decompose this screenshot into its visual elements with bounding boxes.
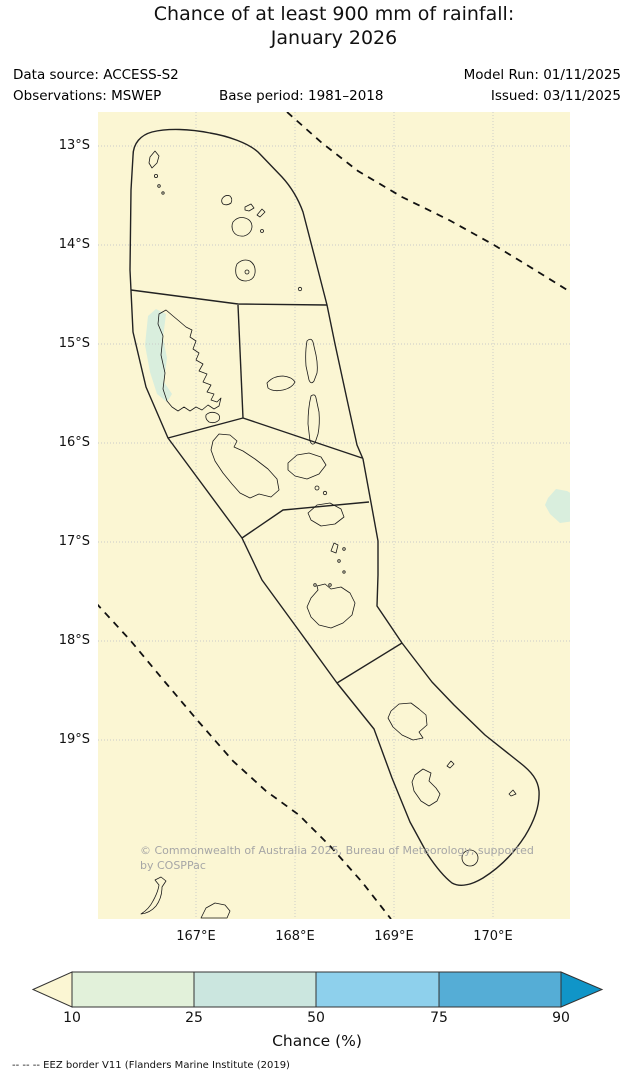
colorbar-seg-10-25 (72, 972, 194, 1007)
lat-tick-13s: 13°S (38, 138, 90, 153)
model-run-text: Model Run: 01/11/2025 (464, 67, 621, 83)
vanuatu-map-svg: © Commonwealth of Australia 2025, Bureau… (98, 112, 570, 919)
lat-tick-14s: 14°S (38, 237, 90, 252)
map-background (98, 112, 570, 919)
colorbar-tick-50: 50 (307, 1010, 325, 1026)
colorbar-seg-25-50 (194, 972, 316, 1007)
eez-footnote: -- -- -- EEZ border V11 (Flanders Marine… (12, 1060, 290, 1071)
forecast-map-page: Chance of at least 900 mm of rainfall: J… (0, 0, 632, 1081)
colorbar-tick-90: 90 (552, 1010, 570, 1026)
map-area: © Commonwealth of Australia 2025, Bureau… (98, 112, 570, 919)
data-source-text: Data source: ACCESS-S2 (13, 67, 179, 83)
colorbar-tick-75: 75 (430, 1010, 448, 1026)
colorbar-under-arrow (33, 972, 72, 1007)
colorbar-tick-10: 10 (63, 1010, 81, 1026)
colorbar-over-arrow (561, 972, 602, 1007)
colorbar-legend: 10 25 50 75 90 Chance (%) (20, 965, 620, 1055)
page-title: Chance of at least 900 mm of rainfall: J… (98, 2, 570, 50)
copyright-line-1: © Commonwealth of Australia 2025, Bureau… (140, 844, 534, 857)
lon-tick-170e: 170°E (463, 929, 523, 944)
colorbar-seg-50-75 (316, 972, 439, 1007)
title-line-2: January 2026 (98, 26, 570, 50)
issued-text: Issued: 03/11/2025 (491, 88, 621, 104)
title-line-1: Chance of at least 900 mm of rainfall: (98, 2, 570, 26)
lat-tick-17s: 17°S (38, 534, 90, 549)
lon-tick-167e: 167°E (166, 929, 226, 944)
base-period-text: Base period: 1981–2018 (219, 88, 383, 104)
lon-tick-169e: 169°E (364, 929, 424, 944)
colorbar-seg-75-90 (439, 972, 561, 1007)
colorbar-label: Chance (%) (272, 1032, 362, 1050)
lat-tick-16s: 16°S (38, 435, 90, 450)
copyright-line-2: by COSPPac (140, 859, 206, 872)
observations-text: Observations: MSWEP (13, 88, 161, 104)
colorbar-tick-25: 25 (185, 1010, 203, 1026)
lat-tick-18s: 18°S (38, 633, 90, 648)
lat-tick-15s: 15°S (38, 336, 90, 351)
lon-tick-168e: 168°E (265, 929, 325, 944)
lat-tick-19s: 19°S (38, 732, 90, 747)
